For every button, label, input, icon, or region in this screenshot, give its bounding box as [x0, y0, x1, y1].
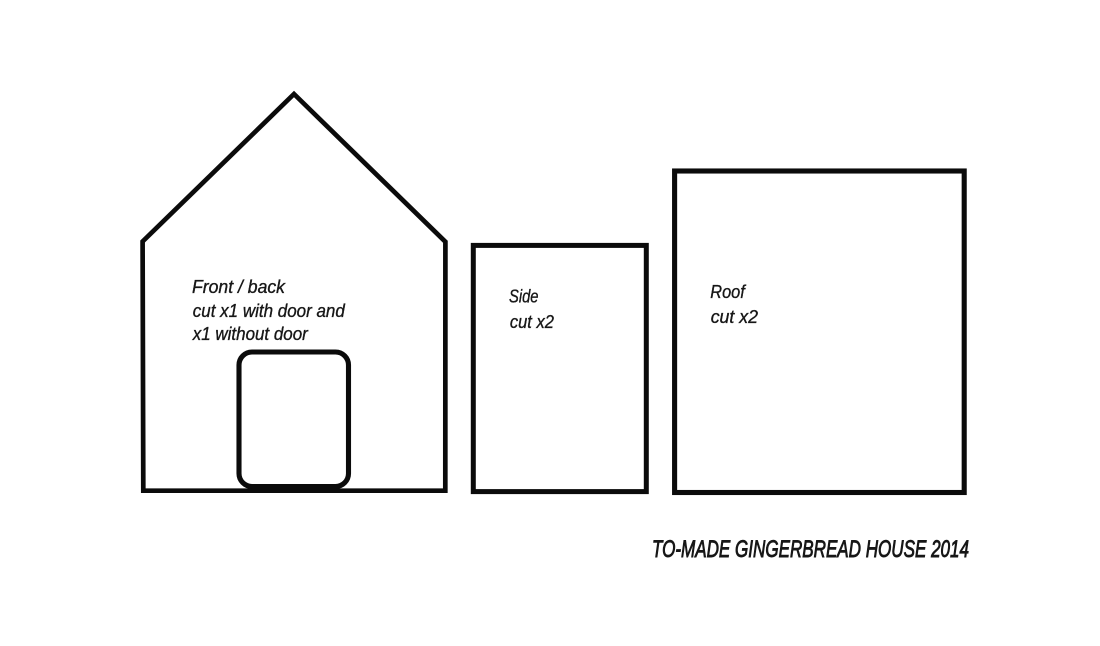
svg-text:cut x1 with door and: cut x1 with door and [193, 300, 346, 321]
svg-text:x1 without door: x1 without door [192, 323, 309, 344]
svg-text:TO-MADE GINGERBREAD HOUSE 2014: TO-MADE GINGERBREAD HOUSE 2014 [652, 536, 969, 563]
svg-text:cut x2: cut x2 [510, 311, 555, 332]
svg-text:Front / back: Front / back [192, 276, 287, 297]
svg-text:Roof: Roof [710, 281, 746, 302]
svg-text:Side: Side [509, 286, 539, 307]
svg-text:cut x2: cut x2 [711, 306, 759, 327]
